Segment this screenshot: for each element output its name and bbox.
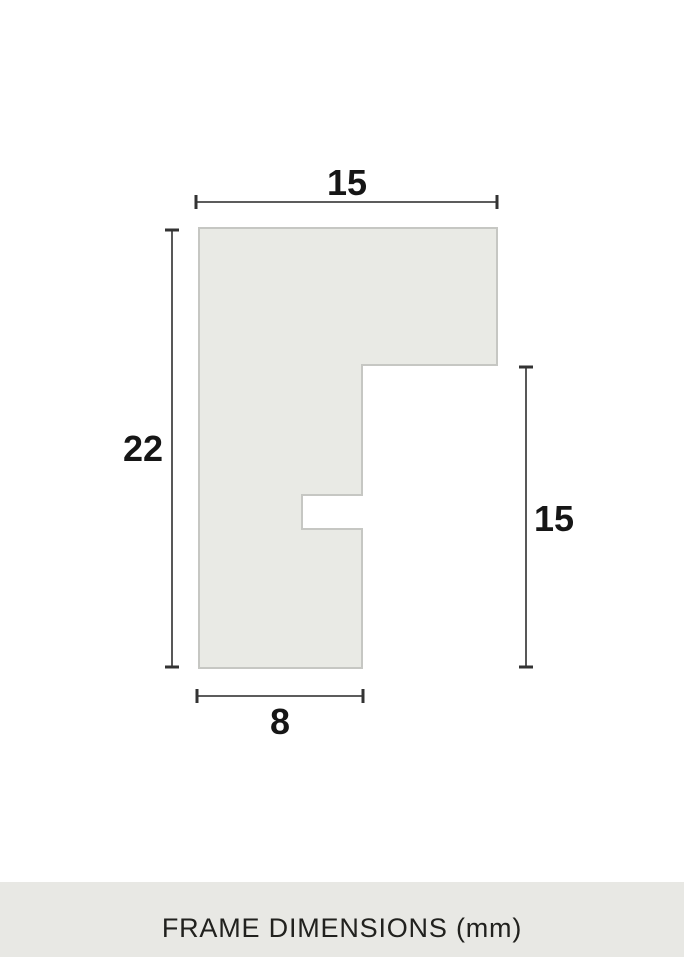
dimension-label-right-height: 15 [534,498,574,539]
dimension-top-width: 15 [196,162,497,209]
dimension-left-height: 22 [123,230,179,667]
dimension-label-bottom-width: 8 [270,701,290,742]
frame-profile-shape [199,228,497,668]
footer-title: FRAME DIMENSIONS (mm) [162,914,522,944]
dimension-bottom-width: 8 [197,689,363,742]
product-dimension-page: 15 22 15 8 FRAME DIMENSIONS (mm) [0,0,684,957]
dimension-right-height: 15 [519,367,574,667]
dimension-label-left-height: 22 [123,428,163,469]
frame-profile-diagram: 15 22 15 8 [0,0,684,882]
dimension-label-top-width: 15 [327,162,367,203]
footer-caption-bar: FRAME DIMENSIONS (mm) [0,882,684,957]
